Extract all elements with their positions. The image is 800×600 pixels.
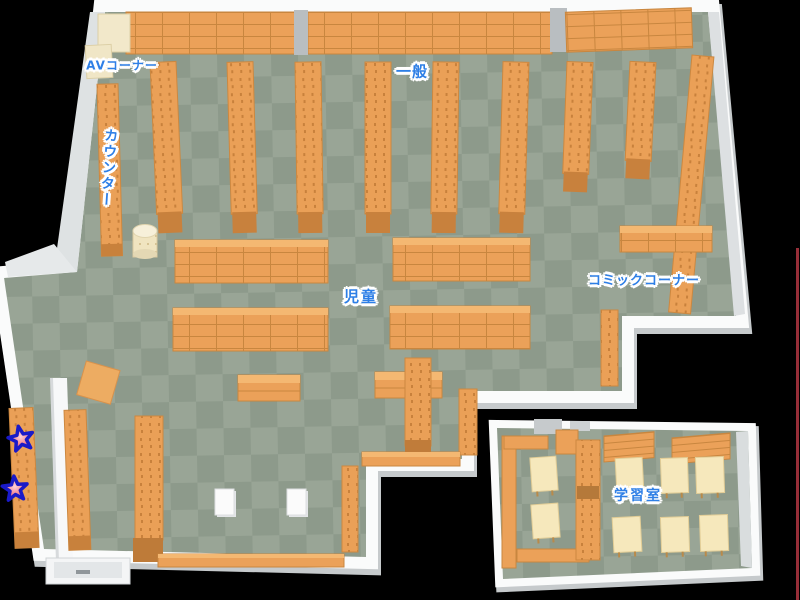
area-label-comic-corner: コミックコーナー — [588, 270, 700, 289]
low-table — [238, 375, 300, 401]
study-table — [660, 517, 689, 558]
floor-box — [287, 489, 308, 517]
screen-edge-line — [796, 248, 799, 600]
study-table — [695, 457, 724, 499]
wall-pillar — [294, 10, 308, 55]
study-table — [531, 503, 561, 544]
study-table — [612, 516, 642, 557]
door-handle-icon — [76, 570, 90, 574]
library-floor-map: AVコーナー カウンター 一般 児童 コミックコーナー 学習室 — [0, 0, 800, 600]
entrance — [46, 558, 130, 584]
floor-box — [215, 489, 236, 517]
study-table — [530, 456, 559, 497]
area-label-av-corner: AVコーナー — [86, 57, 158, 74]
area-label-general: 一般 — [396, 61, 428, 82]
study-table — [660, 458, 688, 499]
floor-map-canvas — [0, 0, 800, 600]
study-table — [699, 515, 728, 557]
wall-pillar — [550, 8, 567, 52]
area-label-study-room: 学習室 — [614, 485, 662, 505]
top-wall-bookshelves — [126, 8, 693, 55]
area-label-children: 児童 — [344, 286, 378, 307]
round-table — [133, 225, 157, 260]
